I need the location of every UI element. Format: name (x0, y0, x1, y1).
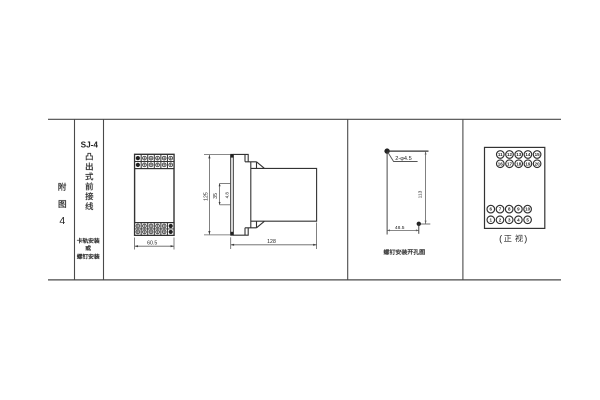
svg-text:14: 14 (525, 152, 531, 157)
svg-text:11: 11 (498, 152, 503, 157)
svg-text:2-φ4.5: 2-φ4.5 (395, 156, 411, 162)
svg-text:16: 16 (498, 161, 504, 166)
svg-text:18: 18 (516, 161, 522, 166)
svg-text:35: 35 (213, 193, 219, 199)
svg-text:4.8: 4.8 (225, 192, 230, 199)
svg-text:10: 10 (525, 207, 531, 212)
svg-text:125: 125 (204, 192, 210, 201)
svg-text:(: ( (499, 234, 502, 244)
svg-text:48.5: 48.5 (395, 225, 405, 231)
svg-text:SJ-4: SJ-4 (81, 141, 99, 150)
svg-text:19: 19 (525, 161, 531, 166)
svg-text:128: 128 (267, 239, 276, 245)
svg-text:): ) (524, 234, 527, 244)
svg-text:12: 12 (507, 152, 513, 157)
svg-text:17: 17 (507, 161, 513, 166)
svg-text:13: 13 (516, 152, 522, 157)
svg-text:4: 4 (59, 215, 65, 227)
svg-text:15: 15 (535, 152, 541, 157)
svg-text:20: 20 (535, 161, 541, 166)
svg-text:113: 113 (418, 190, 424, 198)
svg-text:60.5: 60.5 (147, 241, 157, 247)
